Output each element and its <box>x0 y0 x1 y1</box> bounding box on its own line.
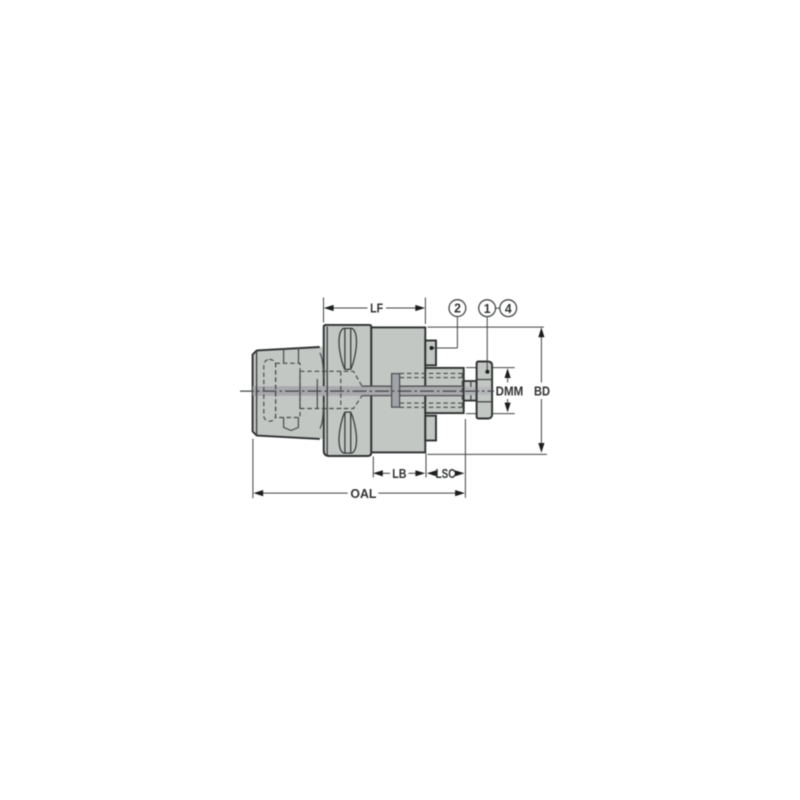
svg-text:DMM: DMM <box>496 384 524 399</box>
svg-text:2: 2 <box>454 302 461 316</box>
svg-text:LSC: LSC <box>436 466 456 481</box>
svg-text:BD: BD <box>534 384 550 399</box>
svg-text:OAL: OAL <box>350 486 376 501</box>
svg-text:LB: LB <box>392 466 406 481</box>
svg-text:4: 4 <box>505 302 512 316</box>
svg-text:1: 1 <box>484 302 491 316</box>
svg-text:LF: LF <box>370 301 383 316</box>
